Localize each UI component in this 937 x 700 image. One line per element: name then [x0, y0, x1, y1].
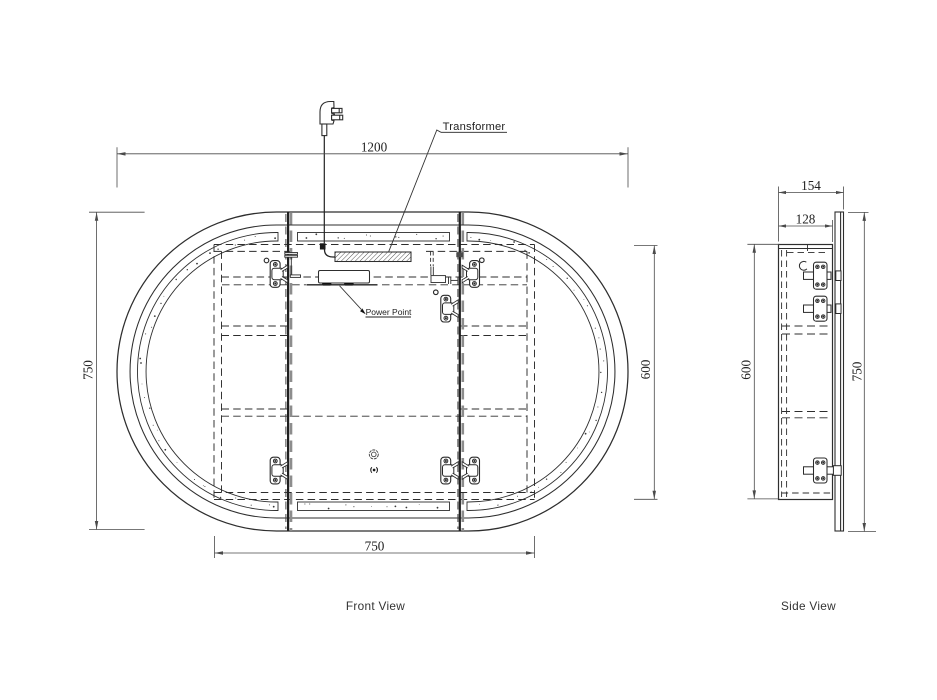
svg-text:Side View: Side View [781, 599, 836, 613]
svg-text:Front View: Front View [346, 599, 405, 613]
svg-text:750: 750 [81, 360, 96, 380]
svg-text:Transformer: Transformer [443, 121, 506, 133]
svg-text:128: 128 [796, 211, 816, 226]
svg-text:1200: 1200 [361, 139, 388, 154]
svg-text:750: 750 [849, 361, 864, 381]
svg-text:600: 600 [739, 360, 754, 380]
svg-text:Power Point: Power Point [366, 307, 412, 317]
svg-text:154: 154 [801, 178, 821, 193]
svg-text:750: 750 [365, 539, 385, 554]
svg-text:600: 600 [638, 359, 653, 379]
